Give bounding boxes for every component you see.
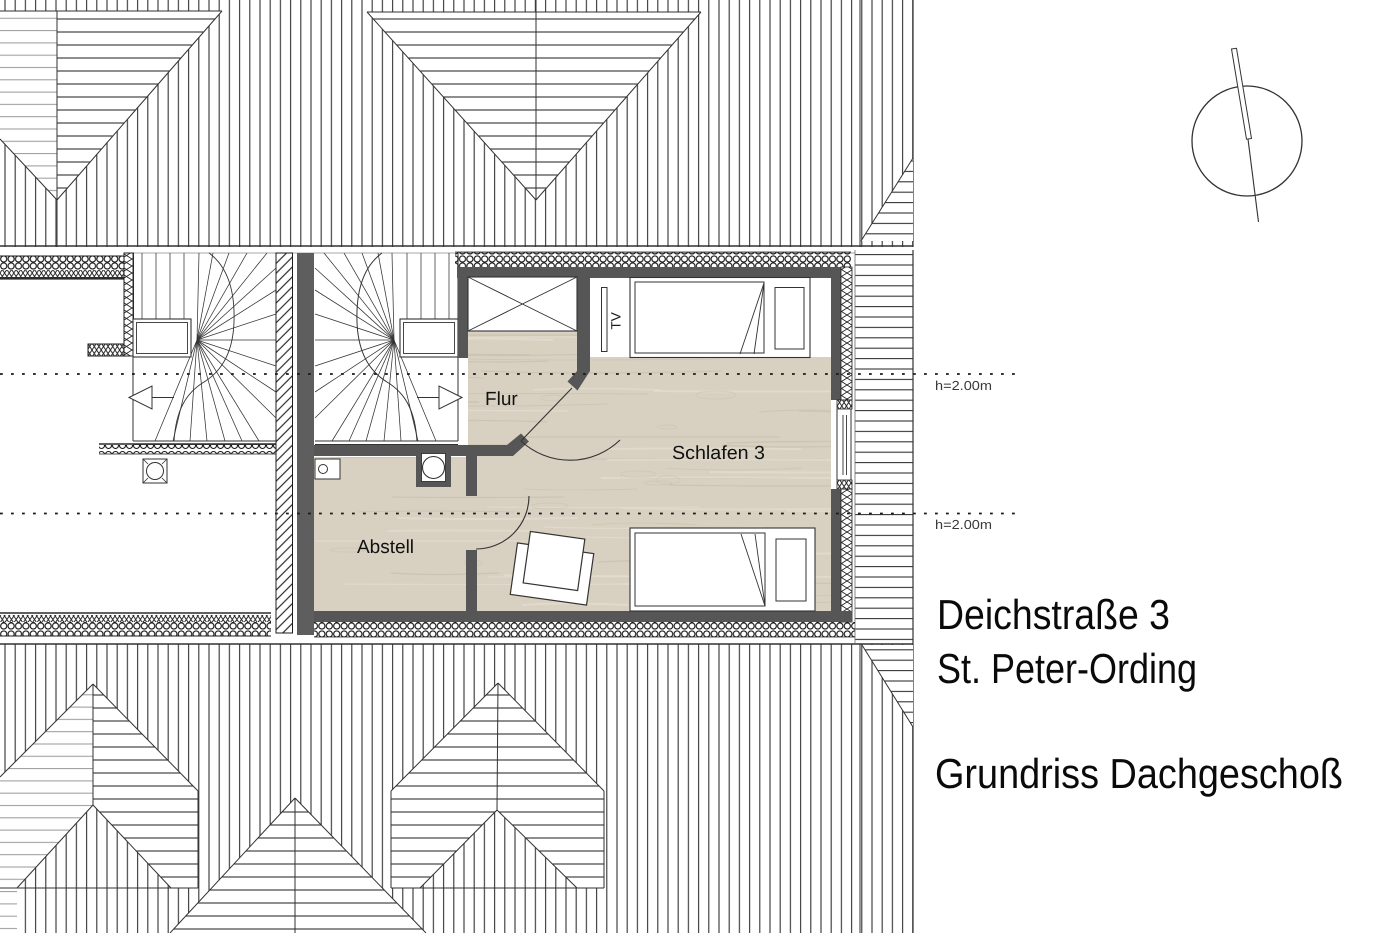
svg-text:Schlafen 3: Schlafen 3 bbox=[672, 443, 765, 464]
svg-text:h=2.00m: h=2.00m bbox=[935, 378, 992, 393]
svg-text:Deichstraße 3: Deichstraße 3 bbox=[937, 591, 1170, 638]
svg-text:Grundriss Dachgeschoß: Grundriss Dachgeschoß bbox=[935, 750, 1343, 797]
svg-text:Flur: Flur bbox=[485, 389, 518, 410]
svg-text:TV: TV bbox=[609, 312, 624, 329]
svg-text:h=2.00m: h=2.00m bbox=[935, 517, 992, 532]
svg-text:St. Peter-Ording: St. Peter-Ording bbox=[937, 645, 1197, 692]
svg-text:Abstell: Abstell bbox=[357, 537, 414, 558]
